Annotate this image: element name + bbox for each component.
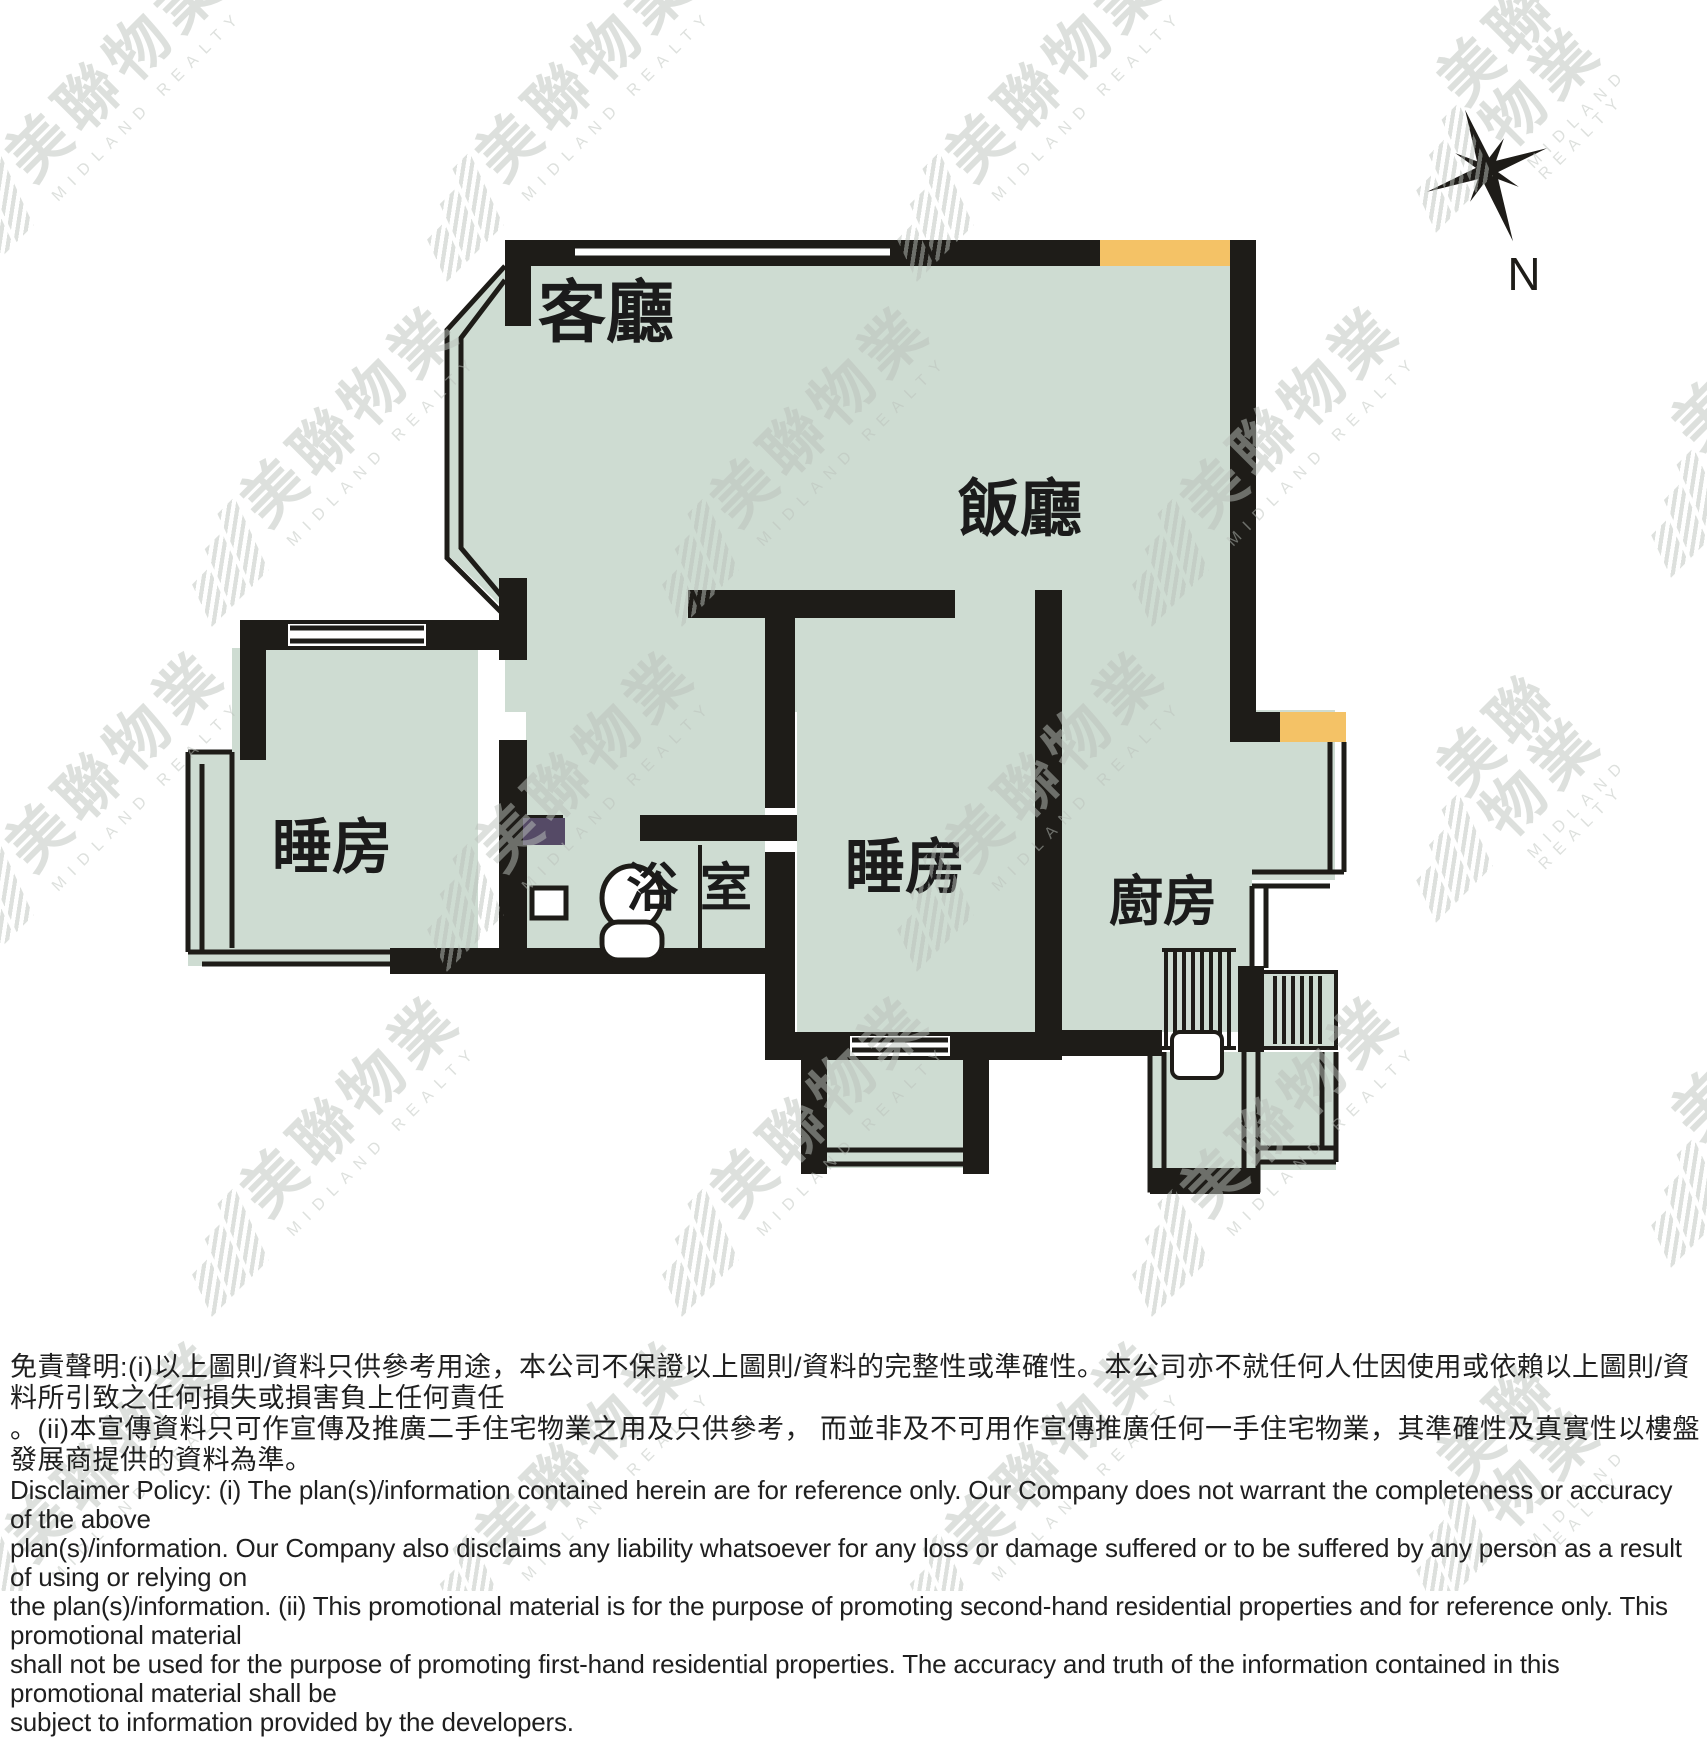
toilet-base — [602, 922, 662, 960]
floor-areas — [188, 264, 1336, 1170]
wall-bedroom-center-left-a — [765, 618, 795, 808]
bathroom-cabinet — [523, 818, 565, 845]
wall-protrusion-right — [963, 1056, 989, 1174]
label-bathroom: 浴室 — [626, 860, 774, 918]
compass-star-short — [1438, 121, 1535, 218]
wall-right — [1230, 240, 1256, 712]
orange-wall-top — [1100, 240, 1230, 266]
wall-bedroom-left-side — [240, 620, 266, 760]
label-kitchen: 廚房 — [1109, 871, 1217, 932]
disclaimer-en-line: subject to information provided by the d… — [10, 1708, 1700, 1737]
label-dining-room: 飯廳 — [958, 475, 1082, 544]
disclaimer-en-line: the plan(s)/information. (ii) This promo… — [10, 1592, 1700, 1650]
wall-bath-bottom — [390, 948, 765, 974]
disclaimer-block: 免責聲明:(i)以上圖則/資料只供參考用途，本公司不保證以上圖則/資料的完整性或… — [10, 1352, 1700, 1737]
bathroom-sink — [532, 888, 566, 918]
disclaimer-zh-line: 。(ii)本宣傳資料只可作宣傳及推廣二手住宅物業之用及只供參考， 而並非及不可用… — [10, 1414, 1700, 1476]
compass-north-label: N — [1507, 248, 1540, 300]
wall-living-left-stub — [505, 264, 531, 326]
bedroom-left-bay-floor — [188, 752, 232, 966]
wall-kitchen-bottom — [1062, 1030, 1162, 1056]
wall-mid-column-lower — [499, 740, 527, 952]
disclaimer-en-line: Disclaimer Policy: (i) The plan(s)/infor… — [10, 1476, 1700, 1534]
compass: N — [1405, 88, 1573, 300]
bedroom-center-floor — [797, 618, 1035, 1032]
orange-wall-kitchen — [1280, 712, 1346, 742]
bedroom-left-floor — [232, 648, 478, 952]
wall-bedroom-center-top — [688, 590, 955, 618]
disclaimer-zh-line: 免責聲明:(i)以上圖則/資料只供參考用途，本公司不保證以上圖則/資料的完整性或… — [10, 1352, 1700, 1414]
disclaimer-en-line: plan(s)/information. Our Company also di… — [10, 1534, 1700, 1592]
label-living-room: 客廳 — [538, 275, 674, 351]
wall-bedroom-center-right — [1035, 590, 1062, 1058]
wall-kitchen-jog — [1230, 712, 1280, 742]
kitchen-sink — [1172, 1032, 1222, 1078]
kitchen-floor-b — [1062, 710, 1252, 1032]
wall-mid-column-upper — [499, 578, 527, 660]
wall-protrusion-left — [801, 1056, 827, 1174]
label-bedroom-left: 睡房 — [272, 815, 392, 881]
disclaimer-en-line: shall not be used for the purpose of pro… — [10, 1650, 1700, 1708]
wall-bathroom-top-b — [640, 815, 797, 841]
label-bedroom-center: 睡房 — [845, 835, 965, 901]
